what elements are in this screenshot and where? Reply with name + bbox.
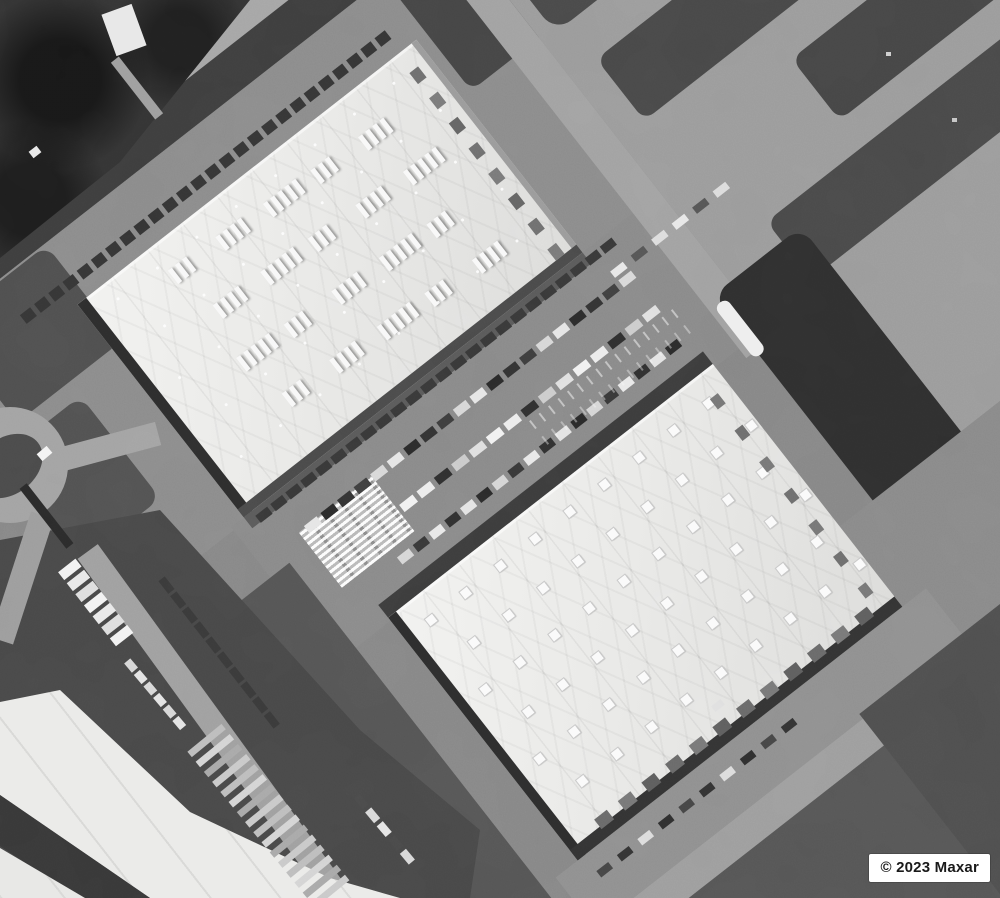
dark-ground-southwest xyxy=(0,0,1000,898)
white-dot-ne-2 xyxy=(952,118,957,122)
attribution-badge: © 2023 Maxar xyxy=(869,854,990,882)
satellite-image: © 2023 Maxar xyxy=(0,0,1000,898)
white-dot-ne-1 xyxy=(886,52,891,56)
car-east-road xyxy=(711,699,725,712)
scene-overlay-layer xyxy=(0,0,1000,898)
roundabout-exit-east xyxy=(47,422,161,474)
